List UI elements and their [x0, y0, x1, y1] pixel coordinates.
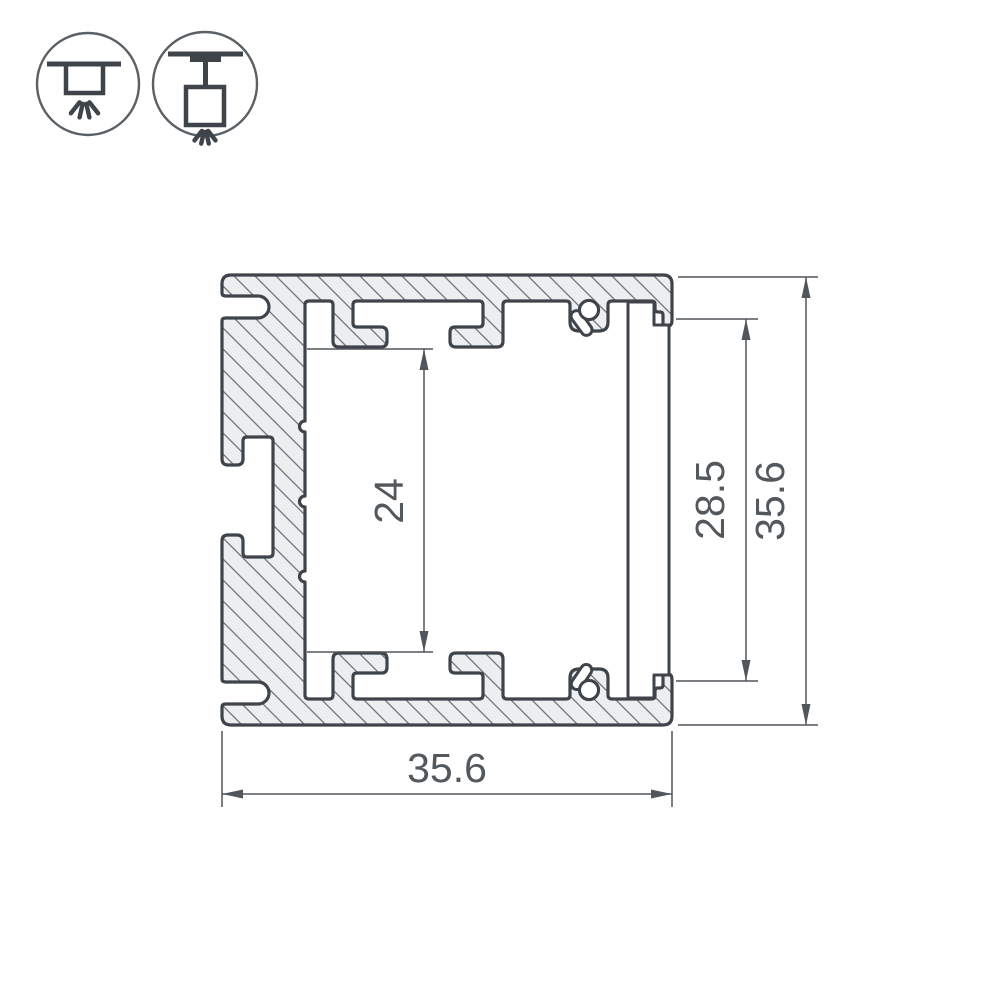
pendant-mount-icon: [153, 32, 257, 144]
profile-drawing-page: 24 28.5 35.6 35.6: [0, 0, 1000, 1000]
dimension-labels: 24 28.5 35.6 35.6: [366, 460, 793, 791]
dimension-label-opening-height: 28.5: [687, 460, 733, 540]
diffuser-cover: [628, 302, 669, 698]
arrow-up-icon: [742, 319, 751, 340]
arrow-down-icon: [742, 660, 751, 681]
recessed-mount-icon: [37, 33, 139, 135]
arrow-up-icon: [802, 277, 811, 298]
profile-body: [222, 275, 672, 725]
dimension-label-overall-width: 35.6: [407, 745, 487, 791]
screw-hole-top: [580, 301, 599, 320]
arrow-right-icon: [651, 790, 672, 799]
icon-circle-border: [37, 33, 139, 135]
light-rays-icon: [195, 131, 216, 144]
luminaire-box: [66, 64, 103, 93]
profile-cross-section-drawing: 24 28.5 35.6 35.6: [0, 0, 1000, 1000]
light-rays-icon: [71, 102, 98, 117]
dimension-lines: [222, 277, 818, 807]
arrow-left-icon: [222, 790, 243, 799]
screw-port-slots: [569, 301, 599, 700]
luminaire-box: [186, 87, 224, 125]
dimension-label-inner-height: 24: [366, 478, 412, 524]
screw-hole-bottom: [580, 681, 599, 700]
dimension-label-overall-height: 35.6: [747, 461, 793, 541]
arrow-down-icon: [802, 704, 811, 725]
arrow-down-icon: [420, 631, 429, 652]
arrow-up-icon: [420, 349, 429, 370]
